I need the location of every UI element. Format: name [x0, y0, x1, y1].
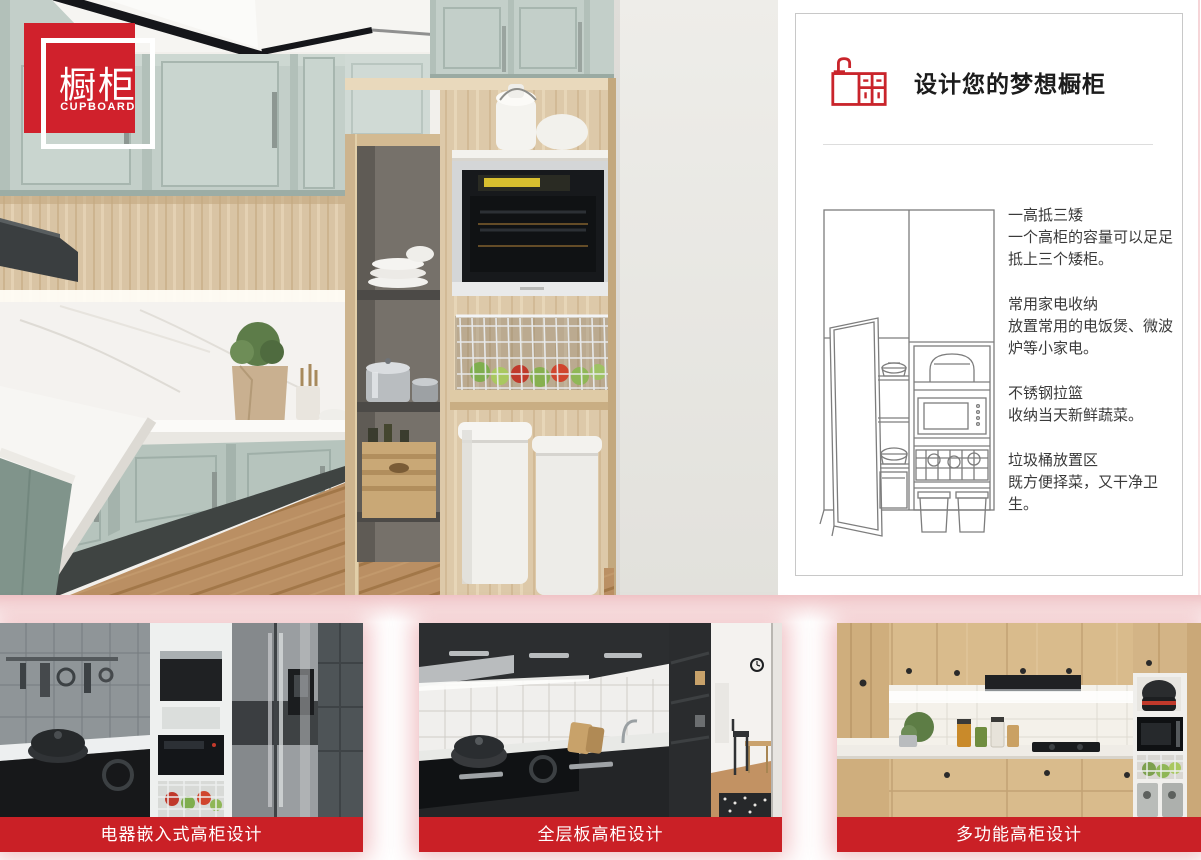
cabinet-sink-icon	[830, 55, 888, 109]
card-caption: 多功能高柜设计	[837, 817, 1201, 852]
feature-desc: 收纳当天新鲜蔬菜。	[1008, 405, 1180, 427]
feature-desc: 一个高柜的容量可以足足抵上三个矮柜。	[1008, 227, 1180, 271]
feature-item: 一高抵三矮 一个高柜的容量可以足足抵上三个矮柜。	[1008, 205, 1180, 271]
panel-header: 设计您的梦想橱柜	[830, 54, 1106, 110]
page-edge-glow	[1198, 0, 1200, 595]
feature-item: 垃圾桶放置区 既方便择菜，又干净卫生。	[1008, 450, 1180, 516]
category-badge-frame: 橱柜 CUPBOARD	[41, 38, 155, 149]
feature-item: 不锈钢拉篮 收纳当天新鲜蔬菜。	[1008, 383, 1180, 427]
category-title-en: CUPBOARD	[46, 101, 150, 113]
tall-cabinet-line-drawing	[814, 206, 1006, 540]
gallery-card-appliance-embedded[interactable]: 电器嵌入式高柜设计	[0, 623, 363, 852]
gallery-glow	[0, 595, 1201, 622]
panel-title: 设计您的梦想橱柜	[914, 65, 1106, 99]
gallery-section: 电器嵌入式高柜设计	[0, 595, 1201, 860]
panel-divider	[823, 144, 1153, 145]
appliance-embedded-tall-cabinet-photo	[0, 623, 363, 817]
card-caption: 全层板高柜设计	[419, 817, 782, 852]
feature-desc: 放置常用的电饭煲、微波炉等小家电。	[1008, 316, 1180, 360]
feature-item: 常用家电收纳 放置常用的电饭煲、微波炉等小家电。	[1008, 294, 1180, 360]
feature-desc: 既方便择菜，又干净卫生。	[1008, 472, 1180, 516]
feature-title: 垃圾桶放置区	[1008, 450, 1180, 472]
gallery-card-multifunction[interactable]: 多功能高柜设计	[837, 623, 1201, 852]
multifunction-tall-cabinet-photo	[837, 623, 1201, 817]
gallery-card-full-shelf[interactable]: 全层板高柜设计	[419, 623, 782, 852]
feature-list: 一高抵三矮 一个高柜的容量可以足足抵上三个矮柜。 常用家电收纳 放置常用的电饭煲…	[1008, 205, 1180, 539]
full-shelf-tall-cabinet-photo	[419, 623, 782, 817]
feature-title: 一高抵三矮	[1008, 205, 1180, 227]
feature-title: 常用家电收纳	[1008, 294, 1180, 316]
feature-title: 不锈钢拉篮	[1008, 383, 1180, 405]
kitchen-photo: 橱柜 CUPBOARD	[0, 0, 778, 595]
info-panel: 设计您的梦想橱柜	[795, 13, 1183, 576]
hero-section: 橱柜 CUPBOARD 设计您的梦想橱柜	[0, 0, 1201, 595]
card-caption: 电器嵌入式高柜设计	[0, 817, 363, 852]
